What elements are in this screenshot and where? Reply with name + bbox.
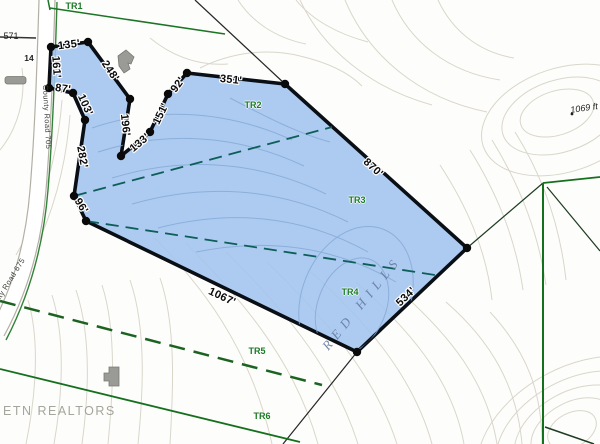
realtor-watermark: ETN REALTORS: [3, 404, 116, 418]
plat-map[interactable]: 135' 248' 161' 87' 103' 282' 96' 196' 13…: [0, 0, 600, 444]
map-canvas: [0, 0, 600, 444]
building-northwest: [5, 77, 26, 85]
dimension-label: 161': [49, 56, 63, 79]
building-south: [104, 367, 119, 386]
parcel-number-571: 571: [3, 31, 18, 41]
building-house-north: [118, 50, 134, 73]
dimension-label: 196': [118, 113, 132, 136]
tract-label-tr6: TR6: [253, 411, 270, 421]
tract-label-tr5: TR5: [248, 346, 265, 356]
parcel-number-14: 14: [24, 53, 33, 63]
tract-label-tr1: TR1: [65, 1, 82, 11]
tract-label-tr4: TR4: [341, 287, 358, 297]
tract-label-tr3: TR3: [348, 195, 365, 205]
dimension-label: 351': [219, 73, 242, 87]
dimension-label: 87': [54, 82, 71, 96]
tract-label-tr2: TR2: [244, 100, 261, 110]
